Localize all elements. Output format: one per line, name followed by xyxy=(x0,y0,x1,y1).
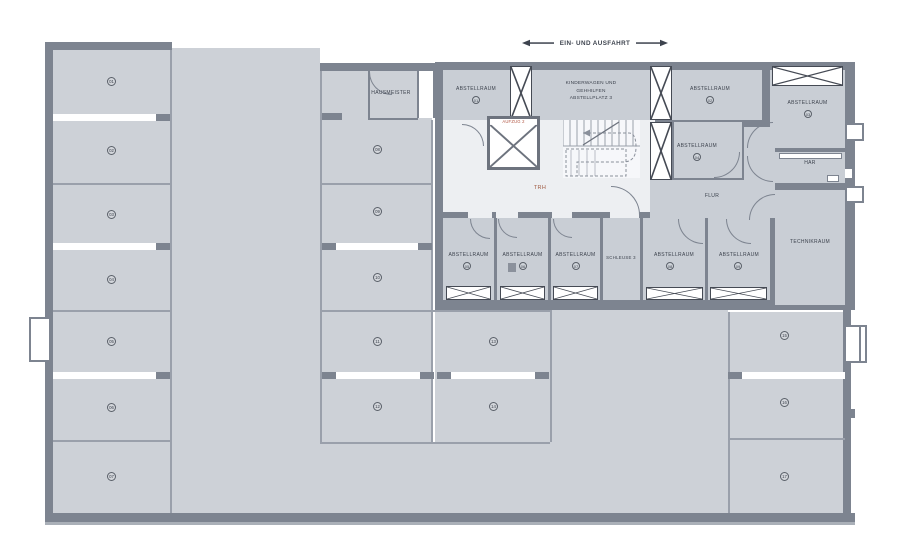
stall-line xyxy=(53,183,170,185)
stall-number-badge: 04 xyxy=(107,275,116,284)
right-parking-column xyxy=(728,312,845,513)
trh-label: TRH xyxy=(522,185,558,192)
fixture-square xyxy=(508,263,516,272)
stall-number-badge: 10 xyxy=(373,273,382,282)
door-opening xyxy=(496,212,518,218)
abstellraum-label: ABSTELLRAUM xyxy=(706,252,772,259)
har-fixture xyxy=(827,175,839,182)
staircase xyxy=(563,120,640,178)
divider-cap xyxy=(322,372,336,379)
stall-line xyxy=(431,120,433,442)
stall-number-badge: 05 xyxy=(107,337,116,346)
stall-line xyxy=(728,312,730,513)
stall-line xyxy=(320,183,432,185)
door-opening xyxy=(468,212,492,218)
divider-cap xyxy=(535,372,549,379)
abstellraum-label: ABSTELLRAUM xyxy=(770,100,845,107)
stall-line xyxy=(170,50,172,513)
stall-number-badge: 02 xyxy=(107,146,116,155)
parking-divider xyxy=(53,243,170,250)
flur-label: FLUR xyxy=(684,193,740,200)
room-number-badge: 08 xyxy=(666,262,674,270)
stall-number-badge: 03 xyxy=(107,210,116,219)
vent-hatch-icon xyxy=(772,66,843,86)
stall-number-badge: 14 xyxy=(489,402,498,411)
wall-slot xyxy=(845,169,852,178)
stall-line xyxy=(53,440,170,442)
stall-number-badge: 01 xyxy=(107,77,116,86)
entry-exit-label: EIN- UND AUSFAHRT xyxy=(560,40,631,47)
schleuse-label: SCHLEUSE 3 xyxy=(596,254,646,261)
shaft-icon xyxy=(650,66,672,120)
abstellraum-label: ABSTELLRAUM xyxy=(641,252,707,259)
divider-cap xyxy=(156,243,170,250)
entry-exit-annotation: EIN- UND AUSFAHRT xyxy=(498,36,692,50)
stall-number-badge: 16 xyxy=(780,398,789,407)
stall-line xyxy=(550,310,552,442)
middle-parking-column xyxy=(320,71,432,442)
bottom-outer-wall xyxy=(45,513,855,522)
arrow-right-icon xyxy=(636,34,668,52)
bottom-wall-shadow xyxy=(45,522,855,525)
abstellraum-label: ABSTELLRAUM xyxy=(660,143,734,150)
vent-hatch-icon xyxy=(553,286,598,300)
kinderwagen-line1: KINDERWAGEN UND xyxy=(534,80,648,88)
stall-number-badge: 11 xyxy=(373,337,382,346)
arrow-left-icon xyxy=(522,34,554,52)
room-number-badge: 03 xyxy=(804,110,812,118)
mid-wall-segment xyxy=(320,113,342,120)
room-technikraum xyxy=(775,190,845,305)
middle-open-area xyxy=(550,310,728,442)
elevator: AUFZUG 2 xyxy=(487,116,540,170)
vent-hatch-icon xyxy=(500,286,545,300)
light-well xyxy=(29,317,51,362)
room-number-badge: 01 xyxy=(472,96,480,104)
divider-cap xyxy=(728,372,742,379)
room-number-badge: 04 xyxy=(693,153,701,161)
stall-line xyxy=(53,310,170,312)
abstellraum-label: ABSTELLRAUM xyxy=(440,86,512,93)
vent-hatch-icon xyxy=(710,287,767,300)
kinderwagen-line2: GEHHILFEN xyxy=(534,88,648,96)
stall-number-badge: 08 xyxy=(373,145,382,154)
shaft-icon xyxy=(650,122,672,180)
stall-number-badge: 09 xyxy=(373,207,382,216)
stall-number-badge: 17 xyxy=(780,472,789,481)
stall-line xyxy=(320,71,322,442)
mid-top-wall-segment xyxy=(320,63,347,71)
har-counter xyxy=(779,153,842,159)
kinderwagen-label: KINDERWAGEN UND GEHHILFEN ABSTELLPLATZ 3 xyxy=(534,80,648,103)
door-opening xyxy=(552,212,572,218)
hausmeister-label: HAUSMEISTER xyxy=(366,90,416,97)
stall-line xyxy=(320,442,550,444)
vent-hatch-icon xyxy=(646,287,703,300)
stall-number-badge: 12 xyxy=(373,402,382,411)
parking-divider xyxy=(322,372,434,379)
room-number-badge: 06 xyxy=(519,262,527,270)
abstellraum-label: ABSTELLRAUM xyxy=(495,252,550,259)
stall-number-badge: 15 xyxy=(780,331,789,340)
parking-divider xyxy=(728,372,845,379)
kinderwagen-line3: ABSTELLPLATZ 3 xyxy=(534,95,648,103)
floor-plan: EIN- UND AUSFAHRT HAUSMEISTER xyxy=(0,0,900,538)
light-well xyxy=(845,123,864,141)
technikraum-label: TECHNIKRAUM xyxy=(775,239,845,246)
parking-divider xyxy=(322,243,432,250)
stall-line xyxy=(320,310,550,312)
room-number-badge: 07 xyxy=(572,262,580,270)
stall-number-badge: 06 xyxy=(107,403,116,412)
har-label: HAR xyxy=(775,160,845,167)
abstellraum-label: ABSTELLRAUM xyxy=(674,86,746,93)
room-number-badge: 09 xyxy=(734,262,742,270)
abstellraum-label: ABSTELLRAUM xyxy=(549,252,602,259)
room-number-badge: 05 xyxy=(463,262,471,270)
room-abstellraum-2 xyxy=(672,70,762,120)
divider-cap xyxy=(322,243,336,250)
parking-divider xyxy=(53,372,170,379)
hausmeister-top-wall xyxy=(347,63,443,71)
wall-stub xyxy=(844,409,855,418)
divider-cap xyxy=(156,114,170,121)
hausmeister-bottom-wall xyxy=(368,118,418,120)
parking-divider xyxy=(53,114,170,121)
stall-line xyxy=(728,438,845,440)
divider-cap xyxy=(418,243,432,250)
divider-cap xyxy=(437,372,451,379)
room-abstellraum-1 xyxy=(443,70,510,120)
divider-cap xyxy=(420,372,434,379)
stall-number-badge: 13 xyxy=(489,337,498,346)
parking-divider xyxy=(437,372,549,379)
stall-number-badge: 07 xyxy=(107,472,116,481)
shaft-icon xyxy=(510,66,532,120)
top-left-wall xyxy=(45,42,172,50)
light-well xyxy=(845,186,864,203)
light-well xyxy=(844,325,867,363)
divider-cap xyxy=(156,372,170,379)
bottom-aisle xyxy=(170,442,728,513)
hausmeister-shaft xyxy=(417,71,435,118)
left-outer-wall xyxy=(45,42,53,522)
elevator-label: AUFZUG 2 xyxy=(490,119,537,125)
staircase-icon xyxy=(563,120,640,178)
room-number-badge: 02 xyxy=(706,96,714,104)
abstellraum-label: ABSTELLRAUM xyxy=(441,252,496,259)
vent-hatch-icon xyxy=(446,286,491,300)
